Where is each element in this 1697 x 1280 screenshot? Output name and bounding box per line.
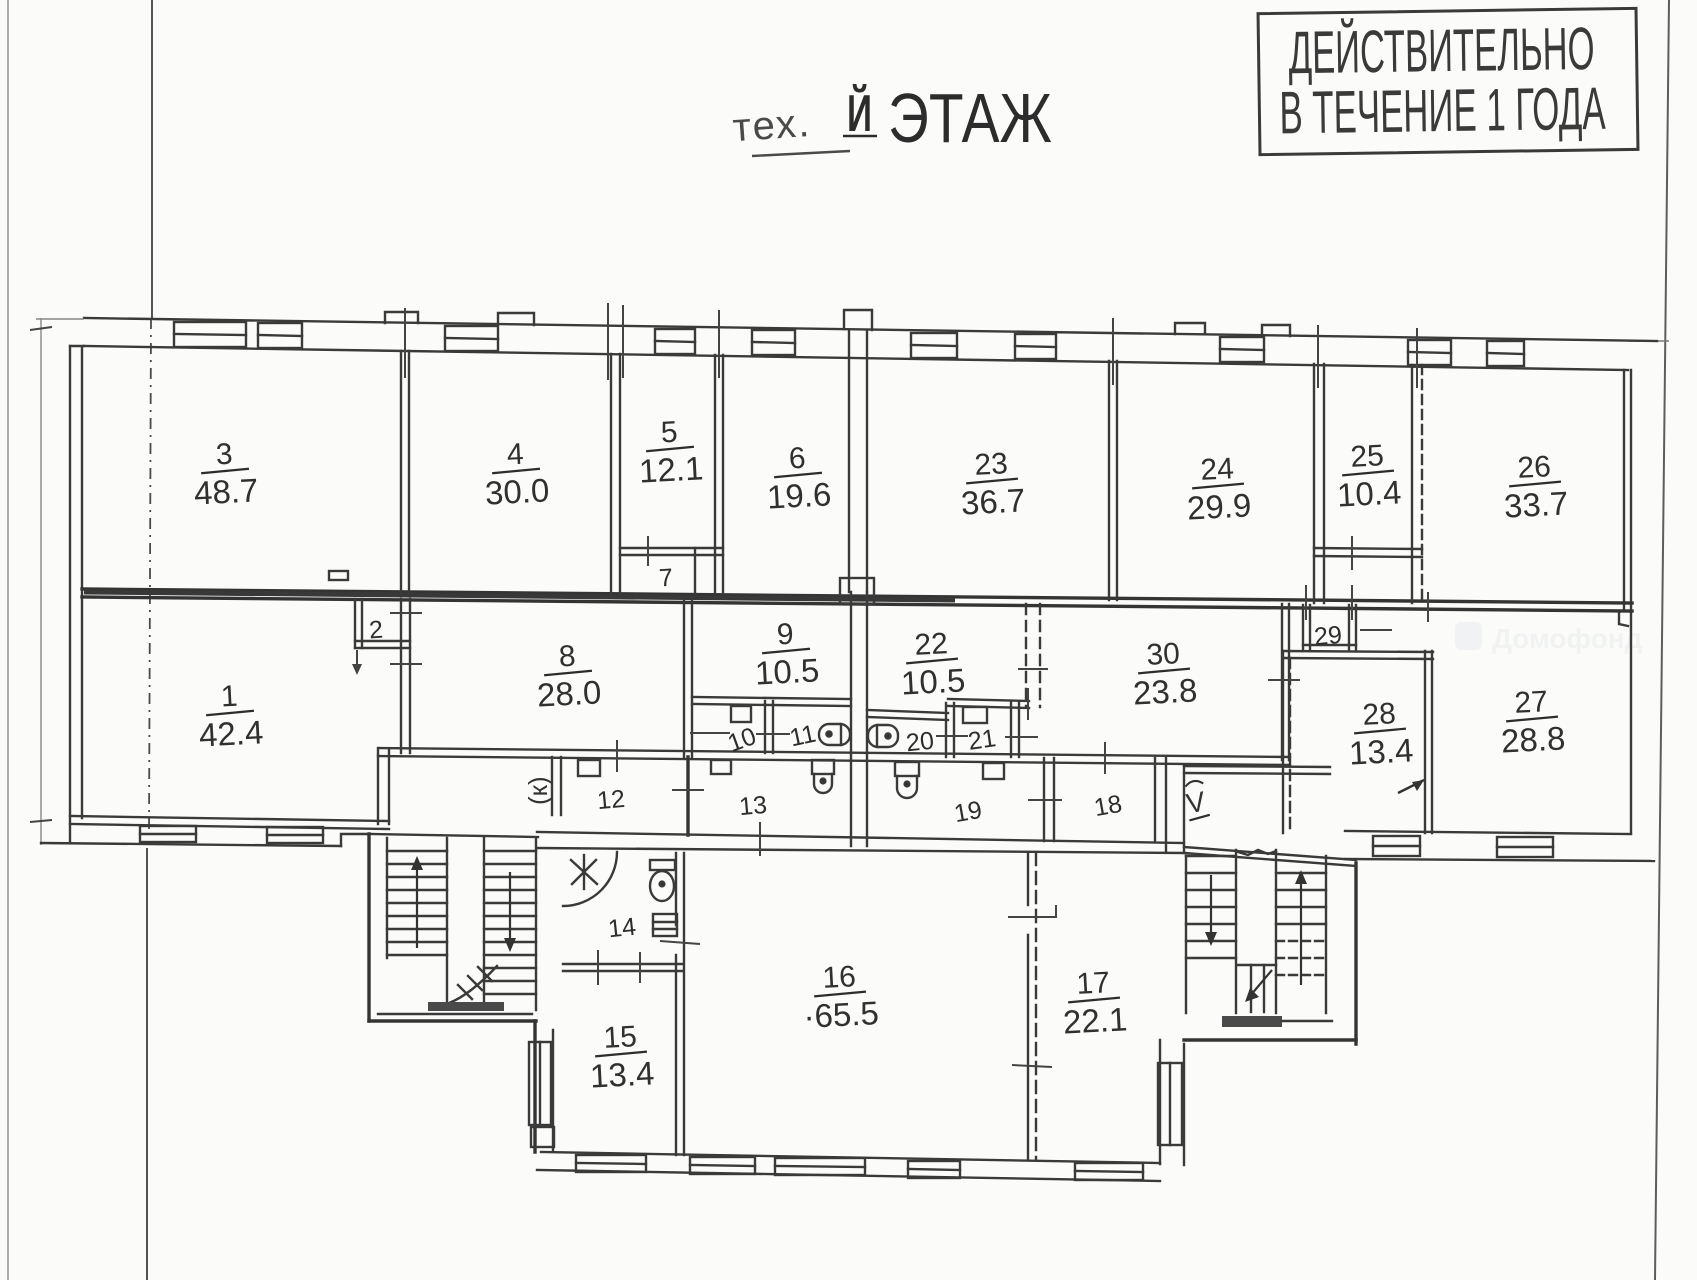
svg-text:2: 2 — [368, 616, 384, 645]
svg-text:33.7: 33.7 — [1503, 484, 1569, 524]
svg-text:15: 15 — [603, 1020, 638, 1055]
svg-text:8: 8 — [558, 640, 576, 674]
svg-text:29: 29 — [1313, 621, 1343, 651]
svg-text:18: 18 — [1092, 790, 1124, 822]
svg-text:28.8: 28.8 — [1500, 719, 1566, 759]
svg-text:10.5: 10.5 — [754, 651, 820, 691]
svg-text:36.7: 36.7 — [960, 481, 1026, 521]
svg-text:25: 25 — [1350, 439, 1385, 474]
svg-text:·65.5: ·65.5 — [803, 994, 880, 1035]
svg-text:23: 23 — [974, 447, 1009, 482]
svg-text:29.9: 29.9 — [1186, 486, 1252, 526]
svg-text:9: 9 — [776, 618, 794, 652]
svg-text:42.4: 42.4 — [198, 713, 264, 753]
svg-text:тех.: тех. — [731, 101, 812, 150]
svg-text:12: 12 — [596, 785, 626, 815]
svg-text:17: 17 — [1076, 966, 1111, 1001]
svg-text:22.1: 22.1 — [1062, 1000, 1128, 1040]
svg-text:24: 24 — [1200, 452, 1235, 487]
svg-text:4: 4 — [506, 438, 524, 472]
svg-text:7: 7 — [658, 564, 674, 593]
svg-text:30: 30 — [1146, 637, 1181, 672]
svg-text:14: 14 — [607, 913, 638, 944]
svg-text:10.4: 10.4 — [1336, 473, 1402, 513]
svg-text:16: 16 — [822, 960, 857, 995]
svg-text:19.6: 19.6 — [766, 475, 832, 515]
svg-text:20: 20 — [905, 727, 936, 758]
svg-text:Домофонд: Домофонд — [1492, 623, 1643, 654]
svg-text:10.5: 10.5 — [900, 661, 966, 701]
svg-text:28.0: 28.0 — [536, 673, 602, 713]
svg-text:13.4: 13.4 — [589, 1054, 655, 1094]
svg-text:12.1: 12.1 — [638, 449, 704, 489]
svg-text:1: 1 — [220, 680, 238, 714]
svg-text:ЭТАЖ: ЭТАЖ — [888, 79, 1052, 157]
svg-text:13: 13 — [738, 791, 768, 821]
svg-text:27: 27 — [1514, 685, 1549, 720]
svg-text:Й: Й — [847, 84, 872, 143]
svg-text:6: 6 — [788, 442, 806, 476]
svg-text:48.7: 48.7 — [193, 471, 259, 511]
svg-text:5: 5 — [660, 416, 678, 450]
svg-text:22: 22 — [914, 627, 949, 662]
svg-text:3: 3 — [215, 438, 233, 472]
svg-text:21: 21 — [966, 724, 997, 756]
svg-text:13.4: 13.4 — [1348, 731, 1414, 771]
svg-text:В ТЕЧЕНИЕ 1 ГОДА: В ТЕЧЕНИЕ 1 ГОДА — [1279, 75, 1606, 147]
svg-text:(к): (к) — [523, 776, 553, 805]
svg-text:26: 26 — [1517, 450, 1552, 485]
svg-text:19: 19 — [952, 796, 984, 828]
svg-text:28: 28 — [1362, 697, 1397, 732]
svg-text:30.0: 30.0 — [484, 471, 550, 511]
svg-text:23.8: 23.8 — [1132, 671, 1198, 711]
